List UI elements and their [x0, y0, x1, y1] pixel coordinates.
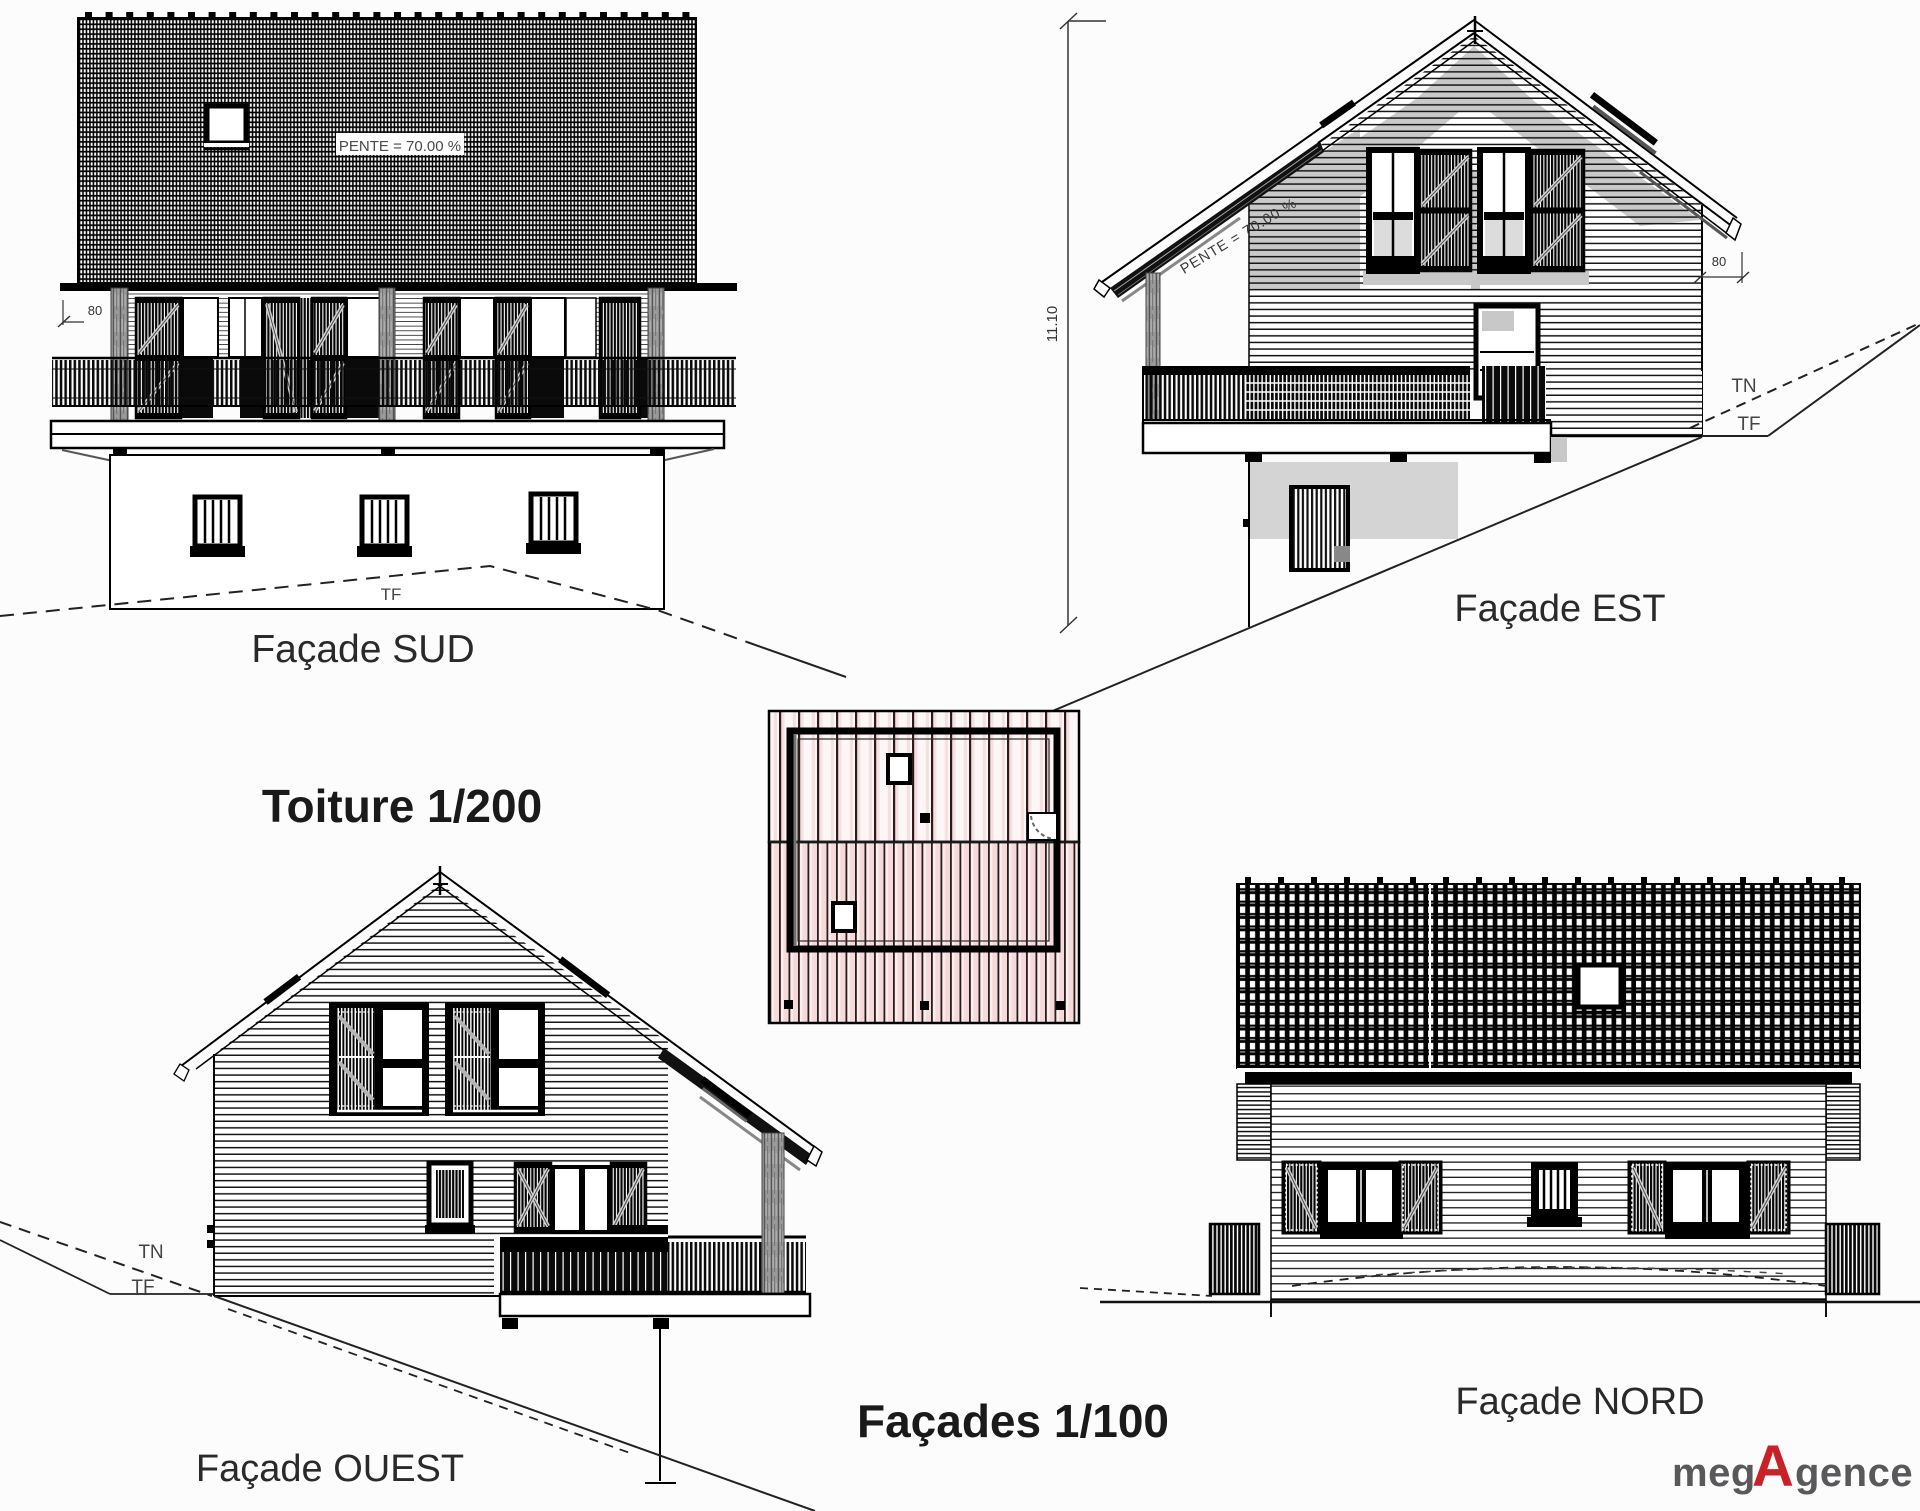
svg-text:Façade OUEST: Façade OUEST [196, 1448, 464, 1490]
svg-text:TF: TF [131, 1277, 154, 1298]
svg-text:Toiture 1/200: Toiture 1/200 [262, 780, 542, 832]
svg-text:PENTE = 70.00 %: PENTE = 70.00 % [339, 138, 461, 155]
svg-text:Façade EST: Façade EST [1454, 588, 1665, 630]
svg-text:gence: gence [1795, 1451, 1913, 1495]
svg-text:meg: meg [1672, 1451, 1756, 1495]
svg-text:Façade SUD: Façade SUD [251, 628, 474, 671]
svg-text:11.10: 11.10 [1044, 306, 1061, 342]
svg-text:TF: TF [381, 585, 402, 604]
svg-text:TN: TN [138, 1242, 163, 1263]
svg-text:Façades 1/100: Façades 1/100 [857, 1395, 1169, 1447]
svg-text:80: 80 [1712, 254, 1726, 269]
svg-text:Façade NORD: Façade NORD [1455, 1381, 1704, 1423]
svg-text:80: 80 [88, 303, 102, 318]
svg-text:TF: TF [1737, 414, 1760, 435]
svg-text:TN: TN [1731, 376, 1756, 397]
svg-text:A: A [1752, 1434, 1794, 1499]
